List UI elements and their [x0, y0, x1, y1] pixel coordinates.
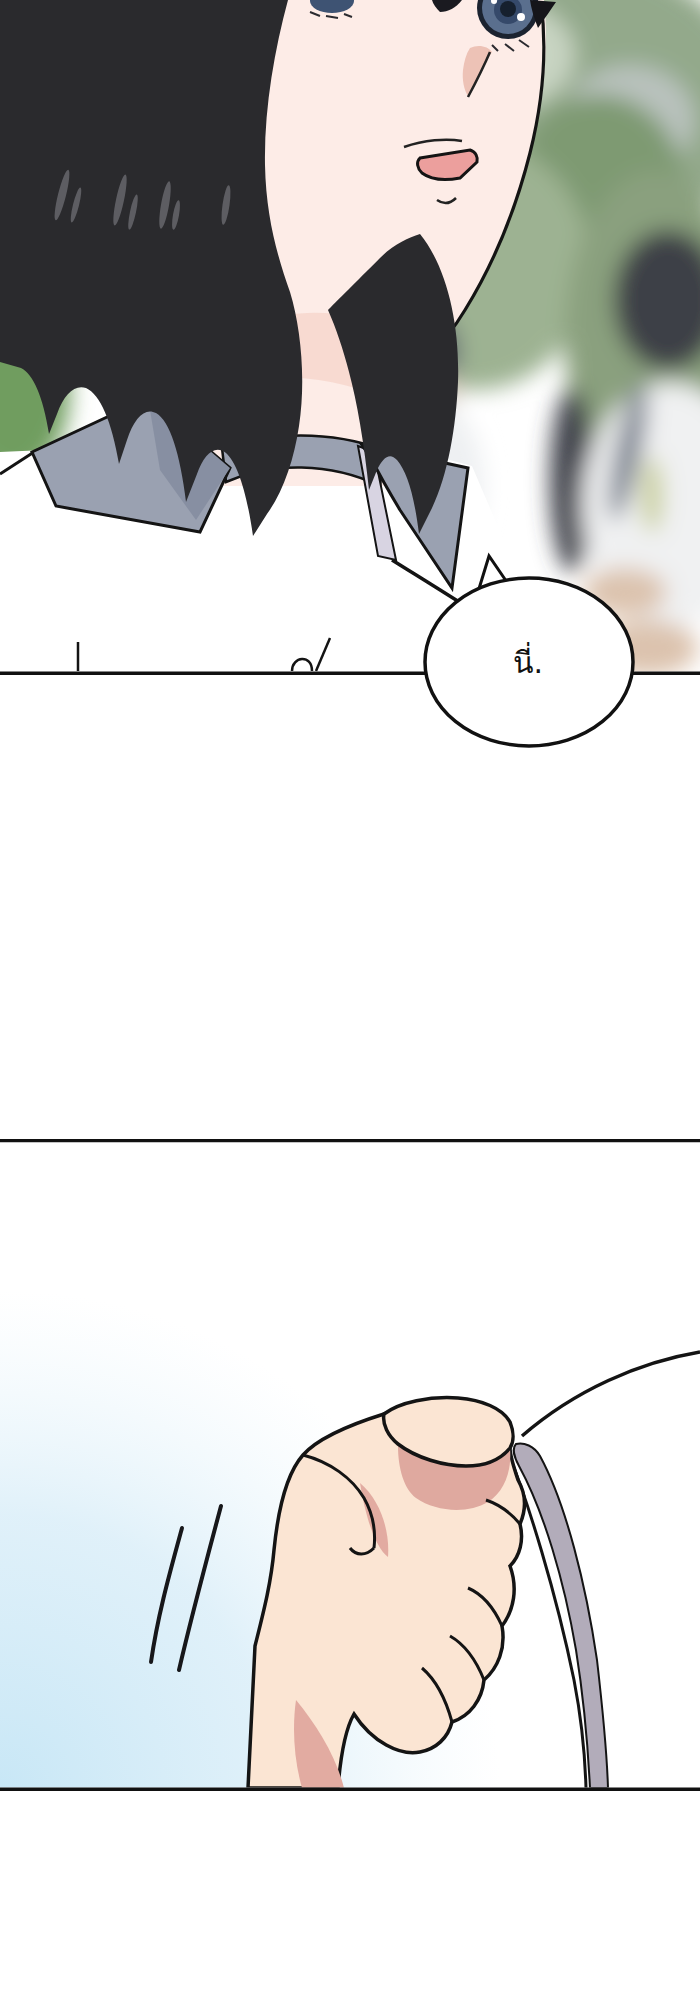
comic-artwork: นี่. [0, 0, 700, 2000]
speech-bubble-text: นี่. [513, 642, 543, 680]
panel-2 [0, 1142, 700, 1788]
panel-border-2 [0, 1139, 700, 1143]
panel-border-3 [0, 1788, 700, 1792]
panel-1 [0, 0, 700, 676]
comic-page: นี่. [0, 0, 700, 2000]
